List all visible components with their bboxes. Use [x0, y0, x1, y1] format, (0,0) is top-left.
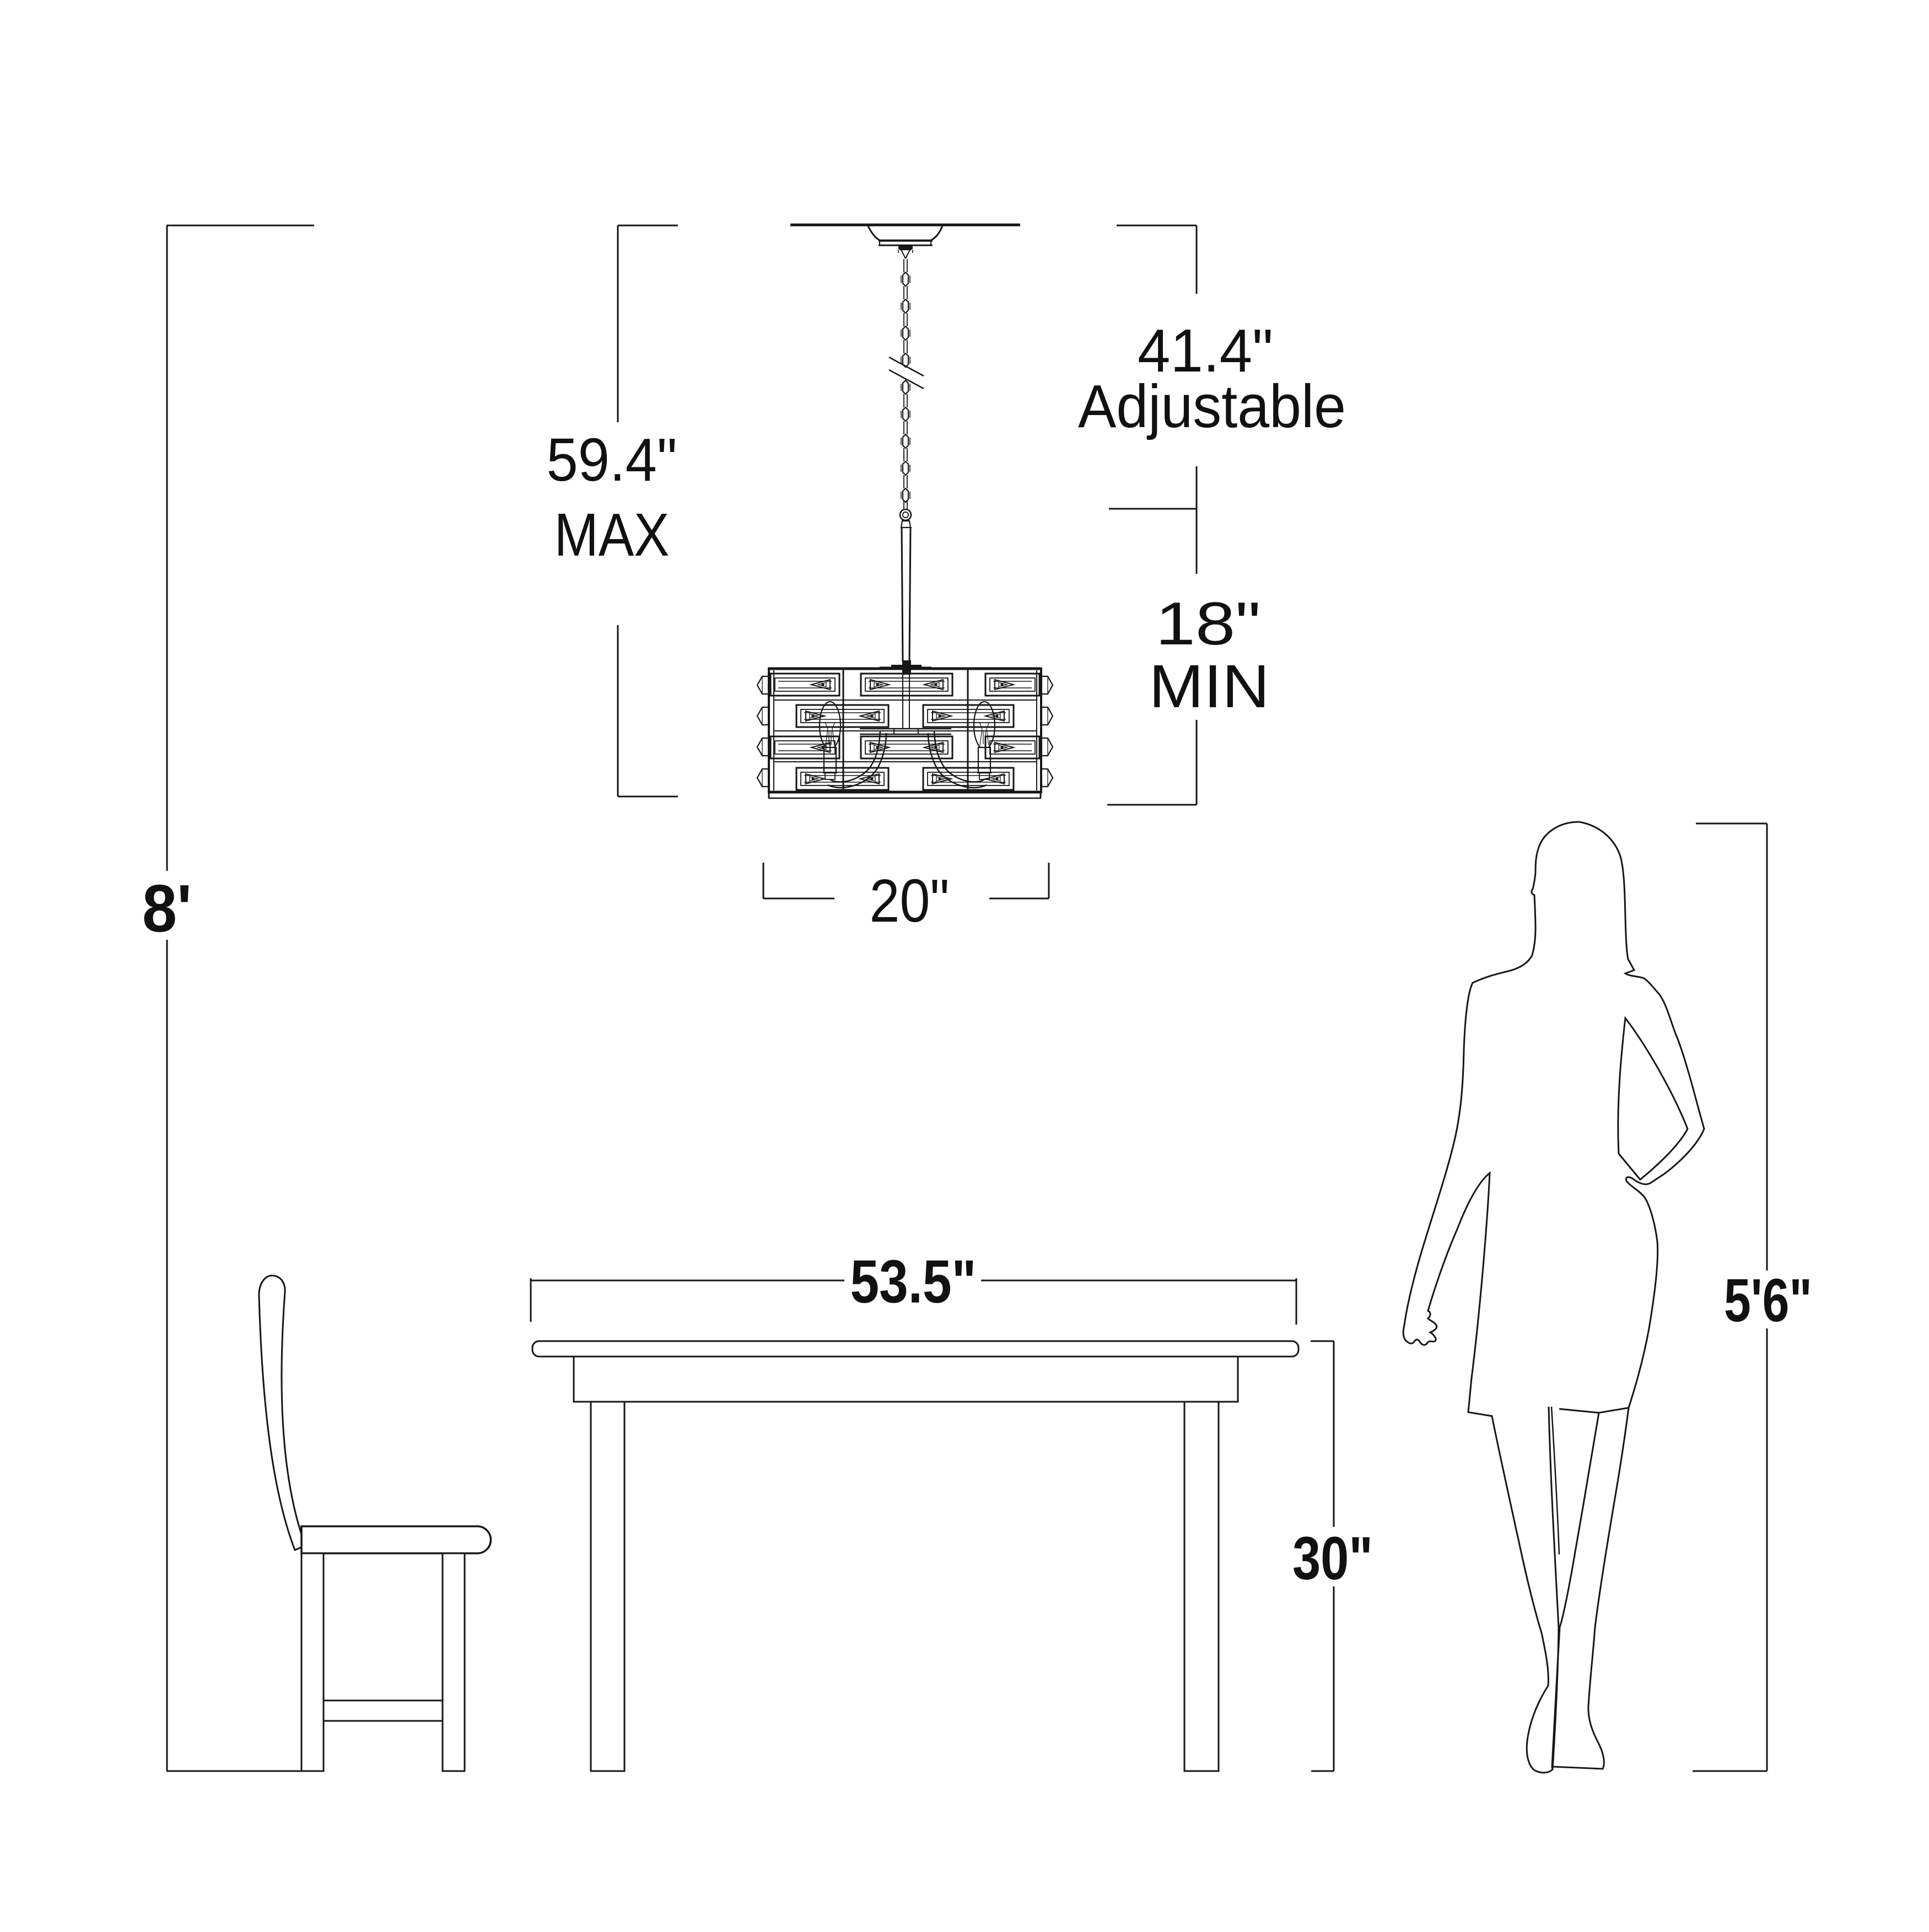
- svg-text:MAX: MAX: [554, 501, 670, 569]
- svg-text:30": 30": [1292, 1525, 1373, 1592]
- svg-text:20": 20": [870, 867, 950, 935]
- svg-text:MIN: MIN: [1149, 653, 1270, 720]
- svg-text:Adjustable: Adjustable: [1078, 373, 1346, 440]
- svg-text:5'6": 5'6": [1724, 1267, 1812, 1334]
- svg-text:8': 8': [142, 871, 192, 946]
- svg-text:59.4": 59.4": [547, 426, 677, 494]
- svg-text:18": 18": [1156, 590, 1261, 658]
- svg-text:53.5": 53.5": [850, 1248, 977, 1316]
